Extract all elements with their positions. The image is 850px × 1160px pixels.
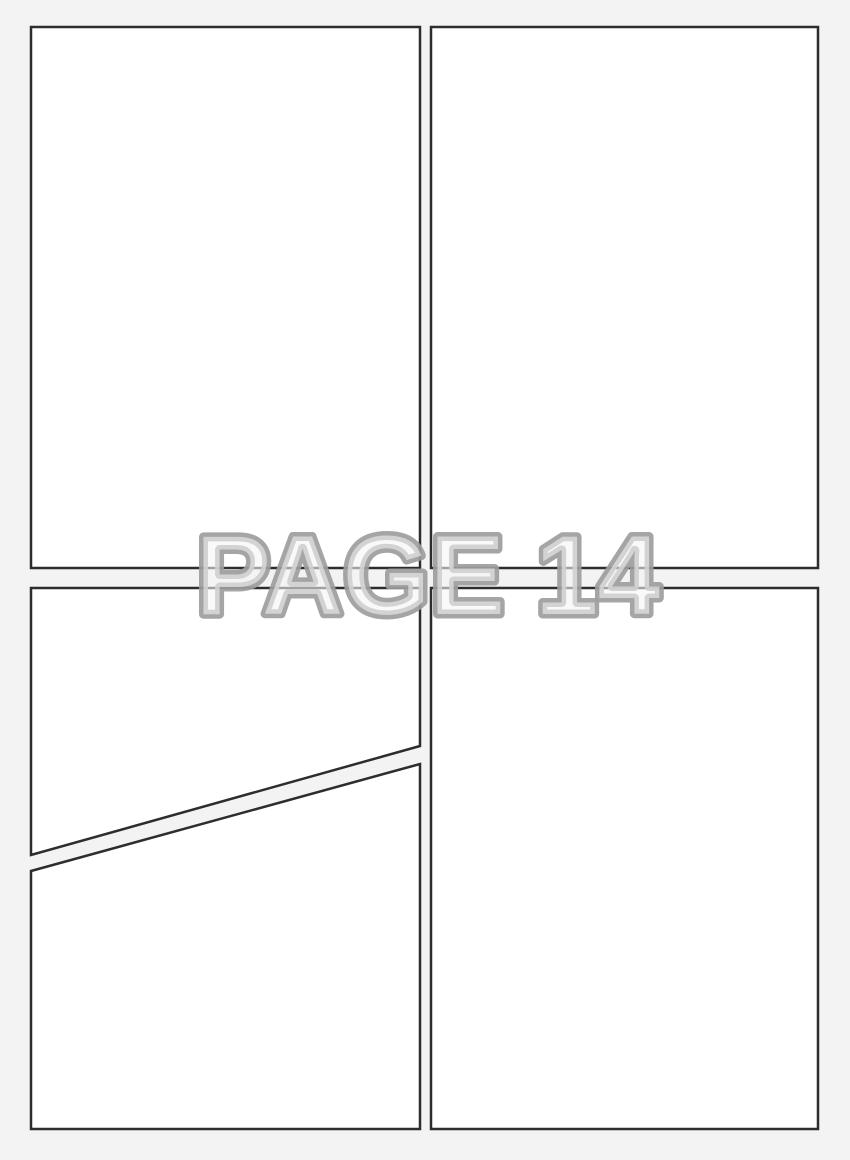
panel-bottom-right — [431, 588, 818, 1129]
page-number-watermark: PAGE 14 — [196, 513, 660, 638]
panel-top-left — [31, 27, 420, 568]
panel-top-right — [431, 27, 818, 568]
page-canvas: PAGE 14 — [0, 0, 850, 1160]
comic-page: PAGE 14 — [0, 0, 850, 1160]
